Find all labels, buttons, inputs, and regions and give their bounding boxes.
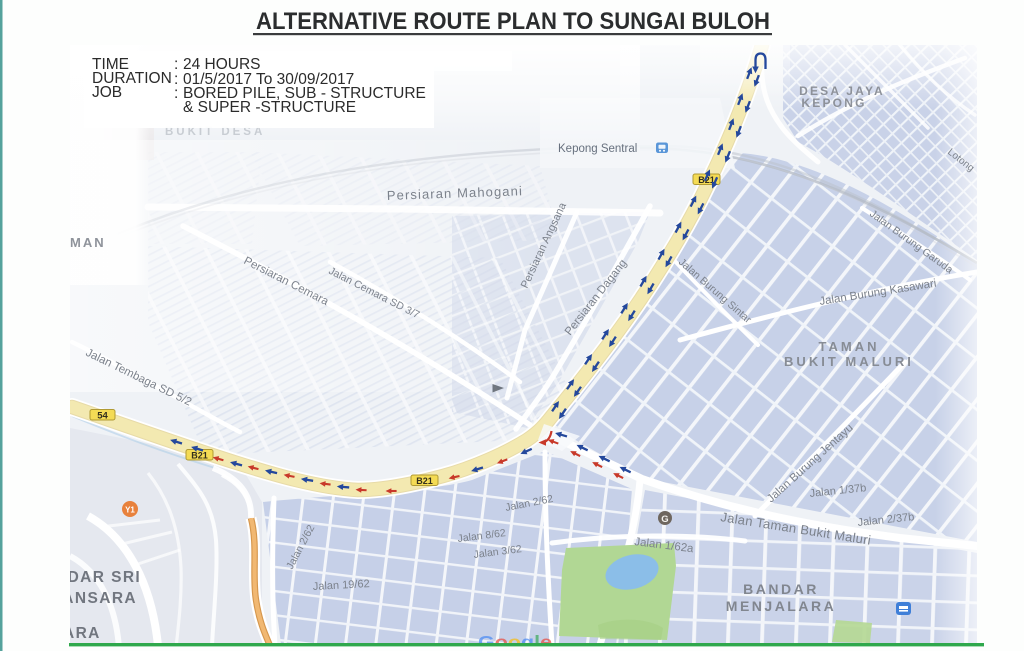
svg-text:TAMAN: TAMAN	[819, 339, 880, 354]
svg-text:G: G	[661, 514, 668, 525]
svg-text:MENJALARA: MENJALARA	[726, 598, 836, 614]
svg-text:54: 54	[97, 410, 108, 421]
svg-text:B21: B21	[416, 476, 433, 486]
svg-text:& SUPER -STRUCTURE: & SUPER -STRUCTURE	[183, 99, 356, 116]
svg-text:MANSARA: MANSARA	[48, 590, 137, 607]
svg-text:MAN: MAN	[70, 235, 106, 250]
svg-text:ARA: ARA	[63, 625, 101, 642]
svg-text:B21: B21	[191, 450, 208, 460]
svg-text:Kepong Sentral: Kepong Sentral	[558, 143, 637, 155]
svg-text:Y1: Y1	[125, 506, 135, 515]
svg-text:ALTERNATIVE ROUTE PLAN TO SUNG: ALTERNATIVE ROUTE PLAN TO SUNGAI BULOH	[256, 8, 770, 35]
svg-text:JOB: JOB	[92, 84, 122, 101]
svg-text:KEPONG: KEPONG	[801, 96, 866, 110]
svg-text:BUKIT MALURI: BUKIT MALURI	[784, 354, 914, 369]
svg-text:NDAR SRI: NDAR SRI	[55, 569, 141, 586]
svg-text:BANDAR: BANDAR	[743, 581, 819, 597]
svg-text::: :	[174, 85, 178, 102]
